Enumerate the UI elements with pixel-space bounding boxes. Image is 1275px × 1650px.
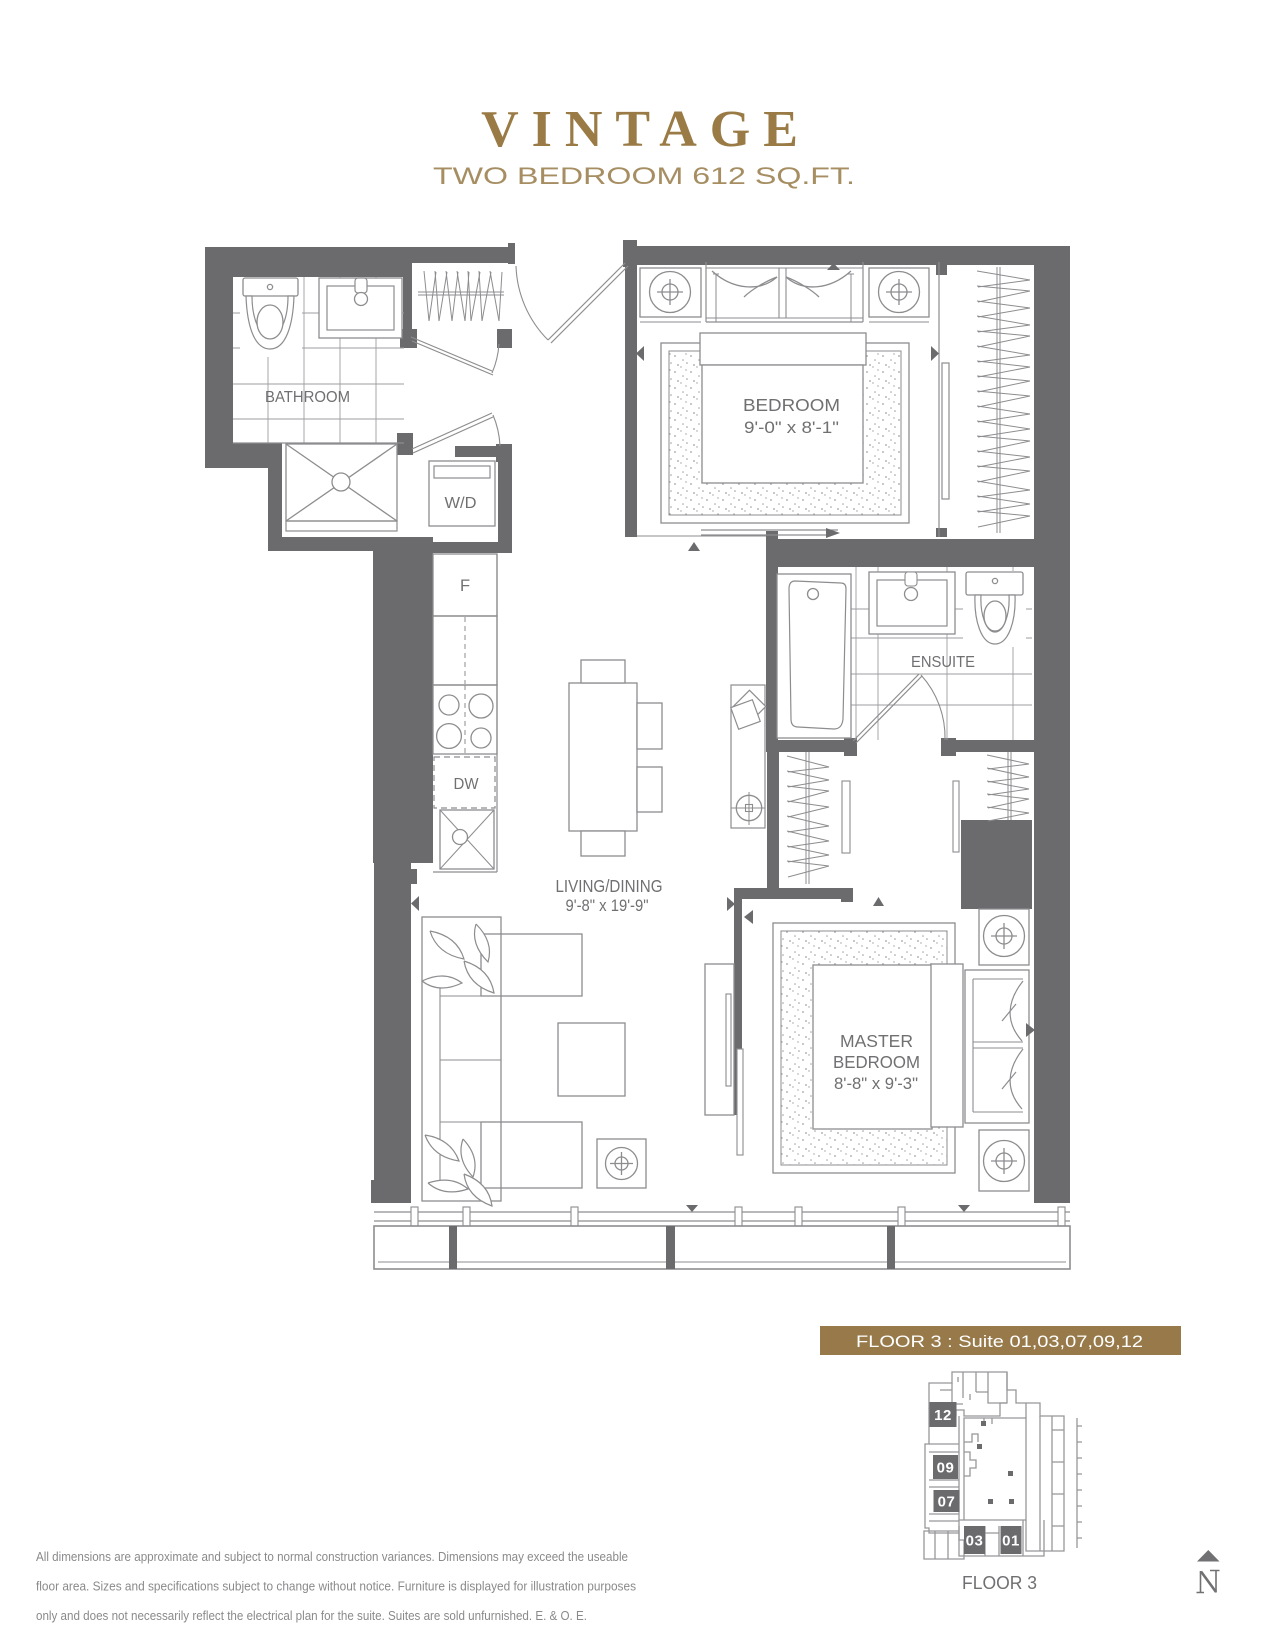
svg-text:LIVING/DINING: LIVING/DINING: [556, 876, 663, 896]
svg-text:only and does not necessarily: only and does not necessarily reflect th…: [36, 1608, 587, 1623]
svg-text:ENSUITE: ENSUITE: [911, 654, 975, 671]
svg-text:07: 07: [938, 1494, 956, 1511]
svg-text:BEDROOM: BEDROOM: [743, 395, 840, 415]
svg-text:12: 12: [934, 1407, 952, 1424]
svg-text:TWO BEDROOM 612 SQ.FT.: TWO BEDROOM 612 SQ.FT.: [433, 163, 855, 190]
svg-text:MASTER: MASTER: [840, 1031, 913, 1051]
svg-text:BEDROOM: BEDROOM: [833, 1052, 920, 1072]
svg-text:BATHROOM: BATHROOM: [265, 389, 350, 406]
svg-text:9'-8" x 19'-9": 9'-8" x 19'-9": [566, 896, 649, 915]
svg-text:8'-8" x 9'-3": 8'-8" x 9'-3": [834, 1074, 918, 1093]
svg-text:W/D: W/D: [445, 495, 477, 512]
svg-text:03: 03: [966, 1533, 984, 1550]
svg-text:F: F: [460, 577, 471, 595]
svg-text:All dimensions are approximate: All dimensions are approximate and subje…: [36, 1549, 628, 1564]
svg-text:01: 01: [1002, 1533, 1020, 1550]
svg-text:VINTAGE: VINTAGE: [481, 101, 811, 158]
svg-text:FLOOR 3 : Suite 01,03,07,09,12: FLOOR 3 : Suite 01,03,07,09,12: [856, 1333, 1143, 1351]
svg-text:DW: DW: [454, 776, 479, 793]
svg-text:FLOOR 3: FLOOR 3: [962, 1572, 1037, 1593]
svg-text:9'-0" x 8'-1": 9'-0" x 8'-1": [744, 418, 839, 437]
svg-text:floor area. Sizes and specific: floor area. Sizes and specifications sub…: [36, 1579, 636, 1594]
svg-text:09: 09: [937, 1460, 955, 1477]
